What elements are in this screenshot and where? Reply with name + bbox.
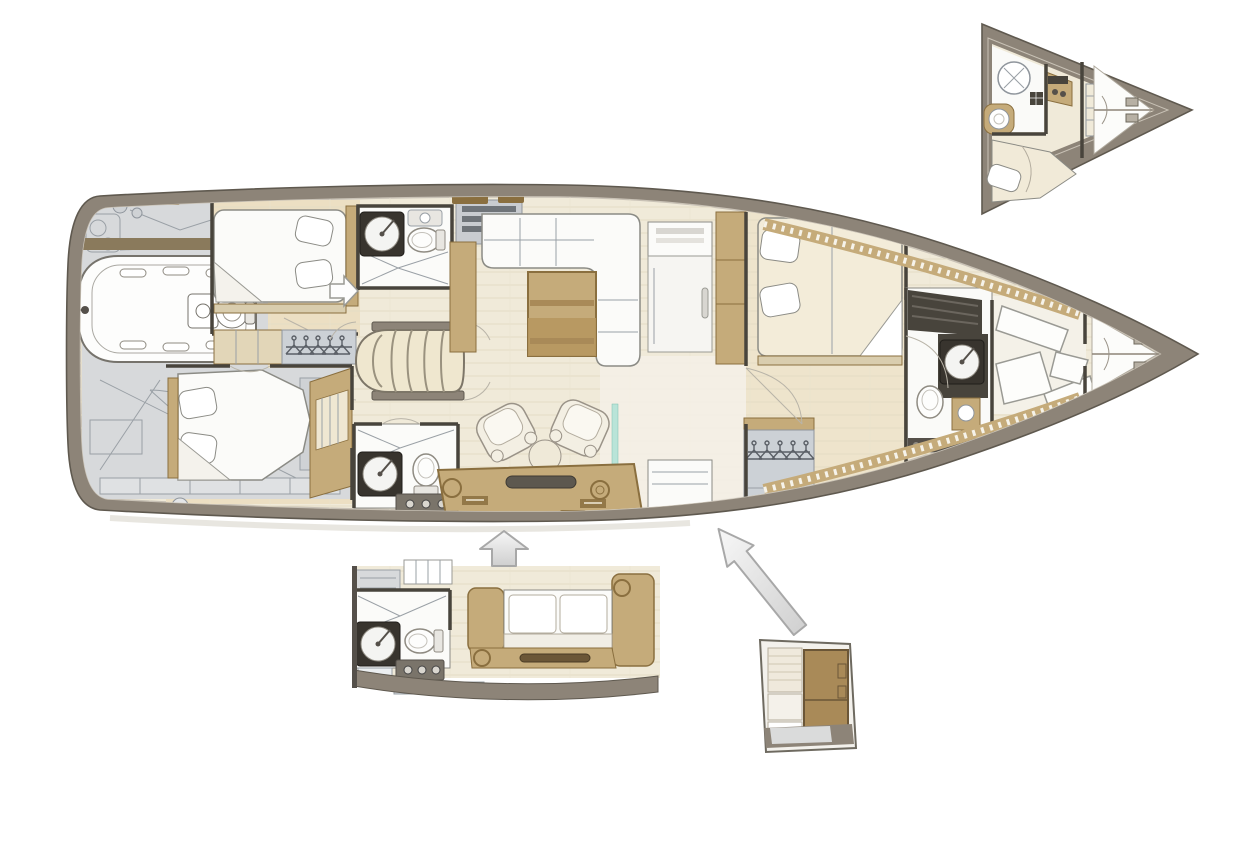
galley-counter: [438, 464, 642, 516]
yacht-floorplan-page: [0, 0, 1250, 850]
floorplan-drawing: [0, 0, 1250, 850]
stowage-slat-panel: [768, 648, 802, 692]
shower-dial-icon: [358, 452, 402, 496]
inset-bathroom: [354, 590, 450, 668]
aft-port-bathroom: [358, 206, 452, 288]
toilet-icon: [408, 228, 445, 252]
toilet-icon: [413, 454, 439, 495]
stowage-cabinet: [804, 650, 848, 728]
shower-dial-icon: [356, 622, 400, 666]
stowage-inset: [760, 640, 856, 752]
bow-sink-icon: [989, 109, 1009, 129]
mid-cabin-wardrobe-wall: [716, 212, 746, 364]
corridor-wardrobe: [214, 330, 356, 364]
toilet-icon: [405, 629, 443, 653]
galley-accent: [612, 404, 618, 464]
pantry-unit: [648, 222, 712, 352]
salon-table: [528, 272, 596, 356]
shower-dial-icon: [360, 212, 404, 256]
toilet-icon: [917, 386, 943, 418]
aft-stbd-cabin: [166, 366, 352, 500]
salon-sideboard: [450, 242, 476, 352]
